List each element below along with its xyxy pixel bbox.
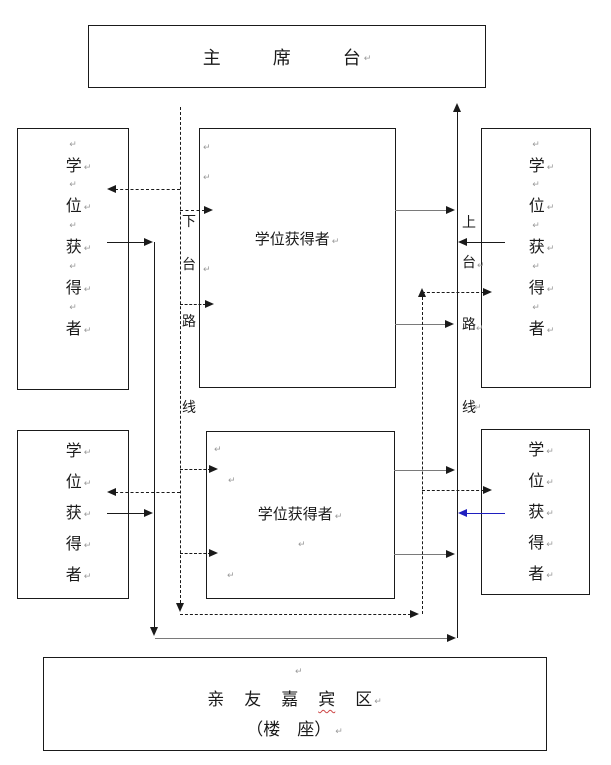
degree-char: 获 <box>66 239 82 255</box>
degree-char: 得 <box>529 280 545 296</box>
arrowhead-left-icon <box>458 238 467 246</box>
guest-char-group: 区 ↵ <box>355 691 382 709</box>
left-top-degree-holder-box: ↵ 学↵ ↵ 位↵ ↵ 获↵ ↵ 得↵ ↵ 者↵ <box>17 128 129 390</box>
pilcrow-icon: ↵ <box>228 477 236 486</box>
arrowhead-right-icon <box>446 206 455 214</box>
left-bottom-out-arrow <box>107 513 145 514</box>
return-route-dashed-vertical <box>422 297 423 614</box>
pilcrow-icon: ↵ <box>547 204 555 213</box>
stage-char: 席 <box>273 44 291 70</box>
degree-char: 得 <box>66 536 82 552</box>
guest-char: 区 <box>355 691 372 709</box>
degree-char: 位 <box>529 198 545 214</box>
right-top-out-arrow <box>467 242 505 243</box>
pilcrow-icon: ↵ <box>546 448 554 457</box>
center-top-box-label: 学位获得者↵ <box>199 231 395 247</box>
pilcrow-icon: ↵ <box>84 286 92 295</box>
guest-char: 亲 <box>207 691 224 709</box>
label-text: 学位获得者 <box>258 505 333 523</box>
guest-char: 嘉 <box>281 691 298 709</box>
arrowhead-right-icon <box>144 238 153 246</box>
pilcrow-icon: ↵ <box>547 245 555 254</box>
degree-char: 学 <box>66 158 82 174</box>
guest-char: 友 <box>244 691 261 709</box>
degree-char: 者 <box>528 566 544 582</box>
pilcrow-icon: ↵ <box>546 541 554 550</box>
dashed-branch-center-bottom-2 <box>180 553 211 554</box>
pilcrow-icon: ↵ <box>84 164 92 173</box>
pilcrow-icon: ↵ <box>546 510 554 519</box>
stage-char-group: 台 ↵ <box>343 44 372 70</box>
left-bottom-degree-holder-box: 学↵ 位↵ 获↵ 得↵ 者↵ <box>17 430 129 599</box>
degree-char: 获 <box>528 504 544 520</box>
pilcrow-icon: ↵ <box>532 263 540 272</box>
degree-char: 学 <box>528 442 544 458</box>
exit-route-label-char: 台 <box>181 258 197 272</box>
arrowhead-right-icon <box>483 288 492 296</box>
degree-char: 者 <box>66 321 82 337</box>
dashed-branch-center-top-2 <box>180 304 206 305</box>
label-text: （楼 座） <box>246 721 331 739</box>
arrowhead-right-icon <box>204 206 213 214</box>
arrowhead-down-icon <box>150 627 158 636</box>
pilcrow-icon: ↵ <box>532 181 540 190</box>
dashed-branch-center-top-1 <box>180 210 205 211</box>
guest-char-spellchecked: 宾 <box>318 691 335 709</box>
entry-route-line-vertical <box>457 110 458 638</box>
pilcrow-icon: ↵ <box>477 262 485 271</box>
degree-char: 位 <box>66 474 82 490</box>
pilcrow-icon: ↵ <box>214 446 222 455</box>
pilcrow-icon: ↵ <box>84 245 92 254</box>
ceremony-seating-diagram: 主 席 台 ↵ ↵ 学↵ ↵ 位↵ ↵ 获↵ ↵ 得↵ ↵ 者↵ ↵ 学↵ ↵ <box>0 0 611 765</box>
pilcrow-icon: ↵ <box>203 266 211 275</box>
pilcrow-icon: ↵ <box>295 668 303 677</box>
center-bottom-box-label: 学位获得者↵ <box>206 506 394 522</box>
dashed-branch-left-top <box>115 189 180 190</box>
arrowhead-right-icon <box>483 486 492 494</box>
right-bottom-degree-holder-box: 学↵ 位↵ 获↵ 得↵ 者↵ <box>481 429 590 595</box>
exit-route-label-char: 路 <box>181 315 197 329</box>
pilcrow-icon: ↵ <box>546 479 554 488</box>
return-route-dashed-bottom <box>180 614 411 615</box>
arrowhead-left-icon <box>107 488 116 496</box>
exit-route-label-char: 下 <box>181 215 197 229</box>
pilcrow-icon: ↵ <box>84 511 92 520</box>
pilcrow-icon: ↵ <box>332 237 340 247</box>
arrowhead-right-icon <box>447 634 456 642</box>
center-bottom-exit-arrow-2 <box>394 554 447 555</box>
pilcrow-icon: ↵ <box>532 304 540 313</box>
arrowhead-right-icon <box>445 320 454 328</box>
pilcrow-icon: ↵ <box>364 55 372 64</box>
pilcrow-icon: ↵ <box>69 263 77 272</box>
dashed-branch-right-bottom <box>422 490 484 491</box>
arrowhead-down-icon <box>176 603 184 612</box>
center-top-exit-arrow-2 <box>395 324 446 325</box>
pilcrow-icon: ↵ <box>69 304 77 313</box>
stage-char: 主 <box>203 44 221 70</box>
arrowhead-right-icon <box>209 465 218 473</box>
bottom-transfer-line <box>155 638 448 639</box>
arrowhead-left-blue-icon <box>458 509 467 517</box>
degree-char: 者 <box>66 567 82 583</box>
arrowhead-right-icon <box>205 300 214 308</box>
pilcrow-icon: ↵ <box>84 327 92 336</box>
entry-route-label-char: 台 <box>461 256 477 270</box>
degree-char: 学 <box>529 158 545 174</box>
pilcrow-icon: ↵ <box>532 222 540 231</box>
pilcrow-icon: ↵ <box>69 141 77 150</box>
degree-char: 位 <box>66 198 82 214</box>
guest-area-title: 亲 友 嘉 宾 区 ↵ <box>43 691 546 709</box>
pilcrow-icon: ↵ <box>476 325 484 334</box>
right-bottom-out-arrow-blue <box>467 513 505 514</box>
pilcrow-icon: ↵ <box>546 572 554 581</box>
degree-char: 得 <box>528 535 544 551</box>
vertical-text: 学↵ 位↵ 获↵ 得↵ 者↵ <box>482 434 589 589</box>
pilcrow-icon: ↵ <box>84 449 92 458</box>
degree-char: 获 <box>529 239 545 255</box>
exit-route-label-char: 线 <box>181 401 197 415</box>
pilcrow-icon: ↵ <box>547 286 555 295</box>
dashed-branch-right-top <box>422 292 484 293</box>
entry-route-label-char: 路 <box>461 318 477 332</box>
pilcrow-icon: ↵ <box>84 573 92 582</box>
vertical-text: ↵ 学↵ ↵ 位↵ ↵ 获↵ ↵ 得↵ ↵ 者↵ <box>18 135 128 339</box>
center-top-degree-holder-box <box>199 128 396 388</box>
vertical-text: ↵ 学↵ ↵ 位↵ ↵ 获↵ ↵ 得↵ ↵ 者↵ <box>482 135 590 339</box>
pilcrow-icon: ↵ <box>374 698 382 707</box>
degree-char: 获 <box>66 505 82 521</box>
arrowhead-left-icon <box>107 185 116 193</box>
pilcrow-icon: ↵ <box>335 728 343 737</box>
pilcrow-icon: ↵ <box>84 204 92 213</box>
right-top-degree-holder-box: ↵ 学↵ ↵ 位↵ ↵ 获↵ ↵ 得↵ ↵ 者↵ <box>481 128 591 388</box>
arrowhead-right-icon <box>144 509 153 517</box>
stage-char: 台 <box>343 44 361 70</box>
guest-area-subtitle: （楼 座） ↵ <box>43 721 546 739</box>
stage-box-title: 主 席 台 ↵ <box>89 26 485 87</box>
pilcrow-icon: ↵ <box>203 174 211 183</box>
arrowhead-right-icon <box>410 610 419 618</box>
degree-char: 得 <box>66 280 82 296</box>
pilcrow-icon: ↵ <box>69 181 77 190</box>
pilcrow-icon: ↵ <box>84 480 92 489</box>
pilcrow-icon: ↵ <box>547 164 555 173</box>
arrowhead-up-icon <box>453 103 461 112</box>
pilcrow-icon: ↵ <box>84 542 92 551</box>
pilcrow-icon: ↵ <box>532 141 540 150</box>
pilcrow-icon: ↵ <box>474 404 482 413</box>
pilcrow-icon: ↵ <box>69 222 77 231</box>
left-top-out-arrow <box>107 242 145 243</box>
pilcrow-icon: ↵ <box>547 327 555 336</box>
label-text: 学位获得者 <box>255 230 330 248</box>
degree-char: 者 <box>529 321 545 337</box>
dashed-branch-left-bottom <box>115 492 180 493</box>
center-bottom-exit-arrow-1 <box>394 470 447 471</box>
degree-char: 学 <box>66 443 82 459</box>
dashed-branch-center-bottom-1 <box>180 469 211 470</box>
entry-route-label-char: 上 <box>461 216 477 230</box>
arrowhead-right-icon <box>209 549 218 557</box>
center-top-exit-arrow-1 <box>395 210 447 211</box>
exit-route-line-vertical <box>154 242 155 633</box>
pilcrow-icon: ↵ <box>203 144 211 153</box>
arrowhead-right-icon <box>446 466 455 474</box>
exit-route-dashed-vertical <box>180 107 181 603</box>
pilcrow-icon: ↵ <box>298 541 306 550</box>
arrowhead-right-icon <box>446 550 455 558</box>
pilcrow-icon: ↵ <box>335 512 343 522</box>
degree-char: 位 <box>528 473 544 489</box>
pilcrow-icon: ↵ <box>227 572 235 581</box>
stage-box: 主 席 台 ↵ <box>88 25 486 88</box>
